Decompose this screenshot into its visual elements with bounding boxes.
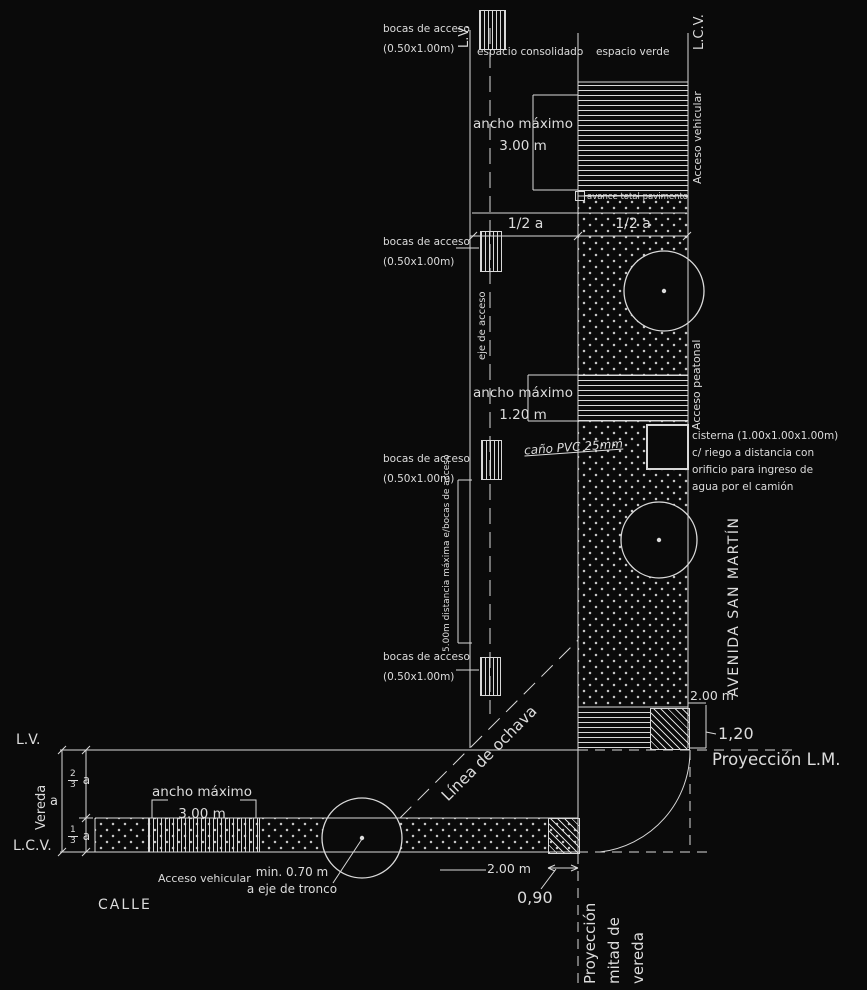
dim-1-20: 1,20 bbox=[718, 724, 754, 743]
acceso-vehicular-bottom-label: Acceso vehicular bbox=[158, 872, 251, 885]
boca-label-size: (0.50x1.00m) bbox=[383, 668, 470, 688]
ancho-maximo-3m-top-value: 3.00 m bbox=[468, 136, 578, 158]
boca-label-size: (0.50x1.00m) bbox=[383, 40, 470, 60]
fraction-suffix: a bbox=[83, 829, 90, 843]
ancho-maximo-3m-bottom-text: ancho máximo bbox=[146, 782, 258, 804]
lv-bottom-label: L.V. bbox=[16, 732, 40, 748]
lcv-top-label: L.C.V. bbox=[692, 14, 707, 50]
boca-label-size: (0.50x1.00m) bbox=[383, 470, 470, 490]
fraction: 1 3 bbox=[68, 826, 78, 847]
eje-de-acceso-label: eje de acceso bbox=[477, 291, 488, 360]
distancia-maxima-label: 5.00m distancia máxima e/bocas de acceso bbox=[442, 455, 452, 652]
proyeccion-mitad-l1: Proyección bbox=[581, 903, 599, 984]
ancho-maximo-120-text: ancho máximo bbox=[468, 383, 578, 405]
dim-a-label: a bbox=[50, 794, 58, 809]
ancho-maximo-120-value: 1.20 m bbox=[468, 405, 578, 427]
proyeccion-mitad-l2: mitad de bbox=[605, 917, 623, 984]
fraction-denominator: 3 bbox=[70, 781, 76, 790]
vereda-label: Vereda bbox=[34, 785, 49, 830]
proyeccion-mitad-l3: vereda bbox=[629, 932, 647, 984]
cisterna-note-l1: cisterna (1.00x1.00x1.00m) bbox=[692, 428, 838, 445]
calle-label: CALLE bbox=[98, 897, 152, 913]
ancho-maximo-3m-bottom: ancho máximo 3.00 m bbox=[146, 782, 258, 825]
avenida-san-martin-label: AVENIDA SAN MARTÍN bbox=[726, 517, 742, 697]
cisterna-note-l4: agua por el camión bbox=[692, 479, 838, 496]
acceso-vehicular-top-label: Acceso vehicular bbox=[691, 91, 704, 184]
fraction: 2 3 bbox=[68, 770, 78, 791]
lcv-bottom-label: L.C.V. bbox=[13, 838, 52, 854]
boca-label-size: (0.50x1.00m) bbox=[383, 253, 470, 273]
fraction-denominator: 3 bbox=[70, 837, 76, 846]
cisterna-note-l3: orificio para ingreso de bbox=[692, 462, 838, 479]
tree-center-dot bbox=[657, 538, 661, 542]
half-a-left-label: 1/2 a bbox=[473, 216, 578, 232]
fraction-suffix: a bbox=[83, 773, 90, 787]
drawing-canvas: L.V. L.C.V. espacio consolidado espacio … bbox=[0, 0, 867, 990]
dim-2m-top: 2.00 m bbox=[690, 688, 734, 703]
boca-label-2: bocas de acceso (0.50x1.00m) bbox=[383, 233, 470, 273]
half-a-right-label: 1/2 a bbox=[580, 216, 686, 232]
espacio-verde-label: espacio verde bbox=[596, 46, 669, 58]
dim-2m-bottom: 2.00 m bbox=[487, 861, 531, 876]
ancho-maximo-3m-bottom-value: 3.00 m bbox=[146, 804, 258, 826]
dim-two-thirds-a: 2 3 a bbox=[68, 770, 90, 791]
ancho-maximo-120: ancho máximo 1.20 m bbox=[468, 383, 578, 426]
boca-label-text: bocas de acceso bbox=[383, 233, 470, 253]
boca-label-text: bocas de acceso bbox=[383, 648, 470, 668]
ancho-maximo-3m-top: ancho máximo 3.00 m bbox=[468, 114, 578, 157]
boca-label-3: bocas de acceso (0.50x1.00m) bbox=[383, 450, 470, 490]
min-tronco-l2: a eje de tronco bbox=[244, 881, 340, 898]
dim-one-third-a: 1 3 a bbox=[68, 826, 90, 847]
boca-label-text: bocas de acceso bbox=[383, 20, 470, 40]
avance-pavimento-label: avance total pavimento bbox=[587, 192, 688, 202]
ancho-maximo-3m-top-text: ancho máximo bbox=[468, 114, 578, 136]
tree-center-dot bbox=[662, 289, 666, 293]
cisterna-note-l2: c/ riego a distancia con bbox=[692, 445, 838, 462]
espacio-consolidado-label: espacio consolidado bbox=[477, 46, 583, 58]
proyeccion-lm-label: Proyección L.M. bbox=[712, 750, 841, 769]
acceso-peatonal-label: Acceso peatonal bbox=[690, 340, 703, 430]
min-tronco-note: min. 0.70 m a eje de tronco bbox=[244, 864, 340, 899]
cisterna-note: cisterna (1.00x1.00x1.00m) c/ riego a di… bbox=[692, 428, 838, 496]
min-tronco-l1: min. 0.70 m bbox=[244, 864, 340, 881]
boca-label-text: bocas de acceso bbox=[383, 450, 470, 470]
boca-label-4: bocas de acceso (0.50x1.00m) bbox=[383, 648, 470, 688]
boca-label-1: bocas de acceso (0.50x1.00m) bbox=[383, 20, 470, 60]
dim-0-90: 0,90 bbox=[517, 888, 553, 907]
